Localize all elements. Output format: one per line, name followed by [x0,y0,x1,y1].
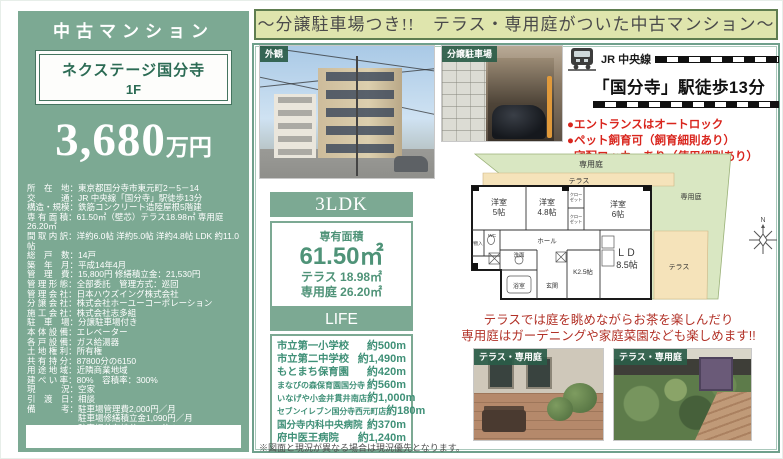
life-item: いなげや小金井貫井南店約1,000m [277,392,406,405]
photo-terrace-garden-2: テラス・専用庭 [613,348,752,441]
life-item: セブンイレブン国分寺西元町店約180m [277,405,406,418]
garden-right-label: 専用庭 [681,192,702,201]
life-item: 国分寺内科中央病院約370m [277,419,406,432]
property-summary-panel: 中古マンション ネクステージ国分寺 1F 3,680万円 所 在 地：東京都国分… [18,11,249,452]
svg-text:物入: 物入 [473,240,483,247]
svg-text:ゼット: ゼット [570,196,583,202]
utility-pole [356,56,358,176]
life-item: 市立第一小学校約500m [277,340,406,353]
photo-label: 外観 [260,46,288,62]
svg-text:K2.5帖: K2.5帖 [573,267,593,276]
garden-gate [699,357,733,391]
railway-track-graphic [593,101,779,108]
life-information-box: LIFE INFORMATION 市立第一小学校約500m 市立第二中学校約1,… [270,308,413,451]
area-value: 61.50㎡ [274,244,409,270]
svg-text:8.5帖: 8.5帖 [616,259,638,270]
parked-car [394,156,428,172]
area-box: 専有面積 61.50㎡ テラス 18.98㎡ 専用庭 26.20㎡ [270,221,413,308]
property-floor: 1F [40,82,227,97]
disclaimer-note: ※図面と現況が異なる場合は現況優先となります。 [259,441,465,454]
life-information-title: LIFE INFORMATION [270,308,413,331]
property-category: 中古マンション [18,17,249,42]
photo-label: テラス・専用庭 [474,349,547,365]
photo-parking: 分譲駐車場 [441,45,563,142]
svg-text:WC: WC [488,233,497,239]
orange-post [547,76,552,138]
property-details-list: 所 在 地：東京都国分寺市東元町2－5－14 交 通：JR 中央線「国分寺」駅徒… [27,184,242,443]
svg-text:5帖: 5帖 [493,207,505,217]
svg-text:浴室: 浴室 [513,282,525,290]
feature-bullet: ●エントランスはオートロック [567,117,779,133]
garaged-car [492,105,546,139]
svg-text:洋室: 洋室 [491,197,507,207]
headline-banner: ～分譲駐車場つき!! テラス・専用庭がついた中古マンション～ [254,9,778,40]
terrace-caption: テラスでは庭を眺めながらお茶を楽しんだり 専用庭はガーデニングや家庭菜園なども楽… [456,312,761,344]
detail-line: 間 取 内 訳：洋約6.0帖 洋約5.0帖 洋約4.8帖 LDK 約11.0帖 [27,232,242,251]
garden-top-label: 専用庭 [579,159,603,169]
blank-note-box [26,425,241,448]
life-item: 市立第二中学校約1,490m [277,353,406,366]
railway-track-graphic [655,56,779,63]
photo-terrace-garden-1: テラス・専用庭 [473,348,604,441]
terrace-top-label: テラス [569,177,590,185]
building-neighbor [274,94,316,158]
rail-line-name: JR 中央線 [601,51,651,67]
svg-text:ホール: ホール [537,237,557,245]
svg-text:6帖: 6帖 [612,209,624,219]
svg-text:洋室: 洋室 [610,199,626,209]
layout-type: 3LDK [270,192,413,217]
feature-bullet: ●ペット飼育可（飼育細則あり） [567,133,779,149]
plant [547,397,573,421]
svg-text:洋室: 洋室 [539,197,555,207]
terrace-right-label: テラス [669,263,690,271]
access-block: JR 中央線 「国分寺」駅徒歩13分 [567,47,779,108]
life-information-list: 市立第一小学校約500m 市立第二中学校約1,490m もとまち保育園約420m… [270,334,413,451]
svg-text:洗面: 洗面 [513,251,525,259]
svg-text:玄関: 玄関 [546,282,558,290]
photo-label: 分譲駐車場 [442,46,497,62]
detail-line: 専 有 面 積：61.50㎡（壁芯）テラス18.98㎡ 専用庭26.20㎡ [27,213,242,232]
life-item: もとまち保育園約420m [277,366,406,379]
garden-area: 専用庭 26.20㎡ [274,285,409,300]
unit-summary-box: 3LDK 専有面積 61.50㎡ テラス 18.98㎡ 専用庭 26.20㎡ [270,192,413,308]
building-main [318,68,402,158]
terrace-area: テラス 18.98㎡ [274,270,409,285]
photo-label: テラス・専用庭 [614,349,687,365]
property-name: ネクステージ国分寺 [40,59,227,80]
garden-bench [482,410,526,432]
svg-text:ゼット: ゼット [570,218,583,224]
svg-text:ＬＤ: ＬＤ [616,248,636,259]
svg-text:4.8帖: 4.8帖 [537,207,556,217]
price-unit: 万円 [166,135,212,160]
price: 3,680万円 [18,117,249,164]
life-item: まなびの森保育園国分寺約560m [277,379,406,392]
price-number: 3,680 [55,114,166,166]
area-label: 専有面積 [274,228,409,244]
flyer-canvas: 中古マンション ネクステージ国分寺 1F 3,680万円 所 在 地：東京都国分… [0,0,783,459]
garden-path [695,392,751,440]
station-walk-time: 「国分寺」駅徒歩13分 [593,74,779,98]
svg-text:N: N [760,217,765,224]
compass-icon: N [745,214,781,256]
floor-plan: 専用庭 テラス 専用庭 テラス 洋室 5帖 洋室 4.8帖 洋室 6帖 クロー … [467,152,733,302]
property-name-box: ネクステージ国分寺 1F [35,50,232,105]
train-icon [567,47,597,71]
photo-exterior: 外観 [259,45,435,179]
